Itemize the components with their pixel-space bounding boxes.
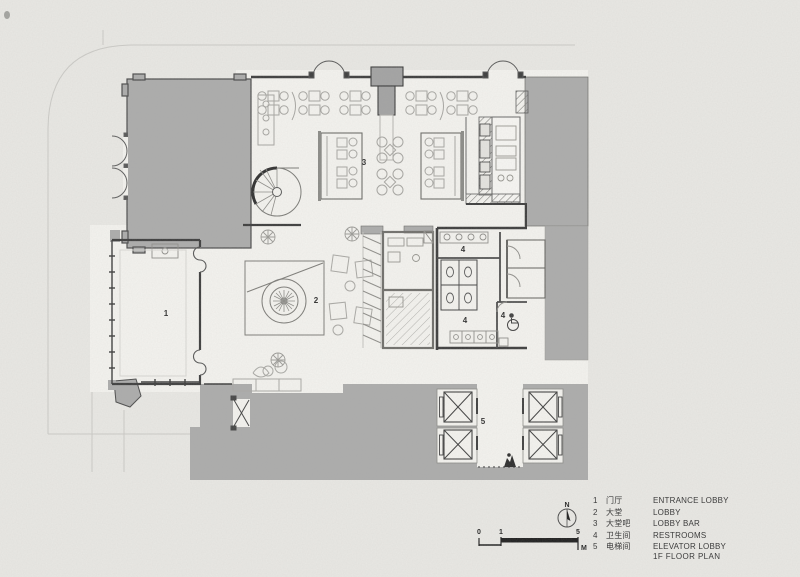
legend-zh-label: 门厅 xyxy=(606,495,653,507)
legend-row-restrooms: 4 卫生间 RESTROOMS xyxy=(593,530,793,542)
floor-plan-drawing: 1 2 3 4 4 4 5 N 0 1 5 M xyxy=(0,0,800,577)
floor-plan-sheet: 1 2 3 4 4 4 5 N 0 1 5 M 1 门厅 ENTRANCE LO… xyxy=(0,0,800,577)
legend-row-entrance-lobby: 1 门厅 ENTRANCE LOBBY xyxy=(593,495,793,507)
plan-title: 1F FLOOR PLAN xyxy=(653,552,720,561)
legend-row-lobby: 2 大堂 LOBBY xyxy=(593,507,793,519)
legend-num: 2 xyxy=(593,507,606,519)
legend-zh-label: 大堂吧 xyxy=(606,518,653,530)
legend-zh-label: 电梯间 xyxy=(606,541,653,553)
legend-en-label: LOBBY xyxy=(653,507,793,519)
legend-num: 4 xyxy=(593,530,606,542)
legend: 1 门厅 ENTRANCE LOBBY 2 大堂 LOBBY 3 大堂吧 LOB… xyxy=(593,495,793,553)
legend-zh-label: 卫生间 xyxy=(606,530,653,542)
legend-row-lobby-bar: 3 大堂吧 LOBBY BAR xyxy=(593,518,793,530)
legend-zh-label: 大堂 xyxy=(606,507,653,519)
legend-num: 3 xyxy=(593,518,606,530)
paper-grain-overlay xyxy=(0,0,800,577)
legend-en-label: ELEVATOR LOBBY xyxy=(653,541,793,553)
legend-row-elevator-lobby: 5 电梯间 ELEVATOR LOBBY xyxy=(593,541,793,553)
legend-num: 1 xyxy=(593,495,606,507)
legend-en-label: ENTRANCE LOBBY xyxy=(653,495,793,507)
legend-en-label: LOBBY BAR xyxy=(653,518,793,530)
legend-en-label: RESTROOMS xyxy=(653,530,793,542)
legend-num: 5 xyxy=(593,541,606,553)
